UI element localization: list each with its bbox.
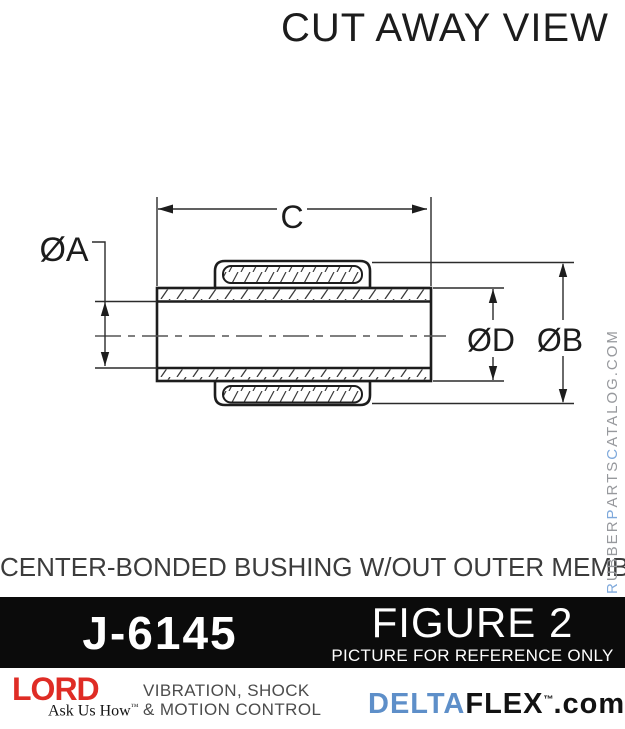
dim-label-a: ØA xyxy=(39,231,88,269)
deltaflex-flex: FLEX xyxy=(465,688,543,720)
reference-note: PICTURE FOR REFERENCE ONLY xyxy=(320,647,625,665)
services-tagline: VIBRATION, SHOCK & MOTION CONTROL xyxy=(143,681,321,719)
deltaflex-delta: DELTA xyxy=(368,688,465,720)
watermark-seg: P xyxy=(604,507,621,519)
dim-label-d: ØD xyxy=(467,322,515,358)
deltaflex-trademark: ™ xyxy=(543,694,553,705)
page: CUT AWAY VIEW xyxy=(0,0,625,729)
deltaflex-logo: DELTAFLEX™.com xyxy=(368,690,625,719)
watermark-seg: C xyxy=(604,447,621,460)
caption: CENTER-BONDED BUSHING W/OUT OUTER MEMBER xyxy=(0,552,625,583)
figure-block: FIGURE 2 PICTURE FOR REFERENCE ONLY xyxy=(320,600,625,665)
lord-logo-block: LORD Ask Us How™ xyxy=(12,676,139,719)
rubber-section-top xyxy=(215,261,370,288)
dim-label-b: ØB xyxy=(537,322,583,358)
cutaway-diagram: ØA C ØD ØB xyxy=(0,0,625,460)
figure-label: FIGURE 2 xyxy=(320,600,625,646)
watermark-seg: ATALOG.COM xyxy=(604,329,621,447)
rubber-section-bottom xyxy=(215,381,370,405)
footer: LORD Ask Us How™ VIBRATION, SHOCK & MOTI… xyxy=(0,668,625,729)
lord-trademark: ™ xyxy=(131,702,139,711)
part-number: J-6145 xyxy=(0,606,320,660)
lord-tagline: Ask Us How™ xyxy=(48,703,139,719)
figure-bar: J-6145 FIGURE 2 PICTURE FOR REFERENCE ON… xyxy=(0,597,625,668)
services-line2: & MOTION CONTROL xyxy=(143,700,321,719)
services-line1: VIBRATION, SHOCK xyxy=(143,681,321,700)
inner-member-tube xyxy=(157,288,431,381)
watermark-seg: UBBER xyxy=(604,519,621,581)
lord-logo: LORD xyxy=(12,676,139,702)
watermark-seg: R xyxy=(604,581,621,594)
watermark-rubberpartscatalog: RUBBERPARTSCATALOG.COM xyxy=(604,338,621,594)
dim-label-c: C xyxy=(280,199,303,235)
watermark-seg: ARTS xyxy=(604,460,621,508)
lord-tagline-text: Ask Us How xyxy=(48,702,131,719)
deltaflex-domain: .com xyxy=(553,688,625,720)
